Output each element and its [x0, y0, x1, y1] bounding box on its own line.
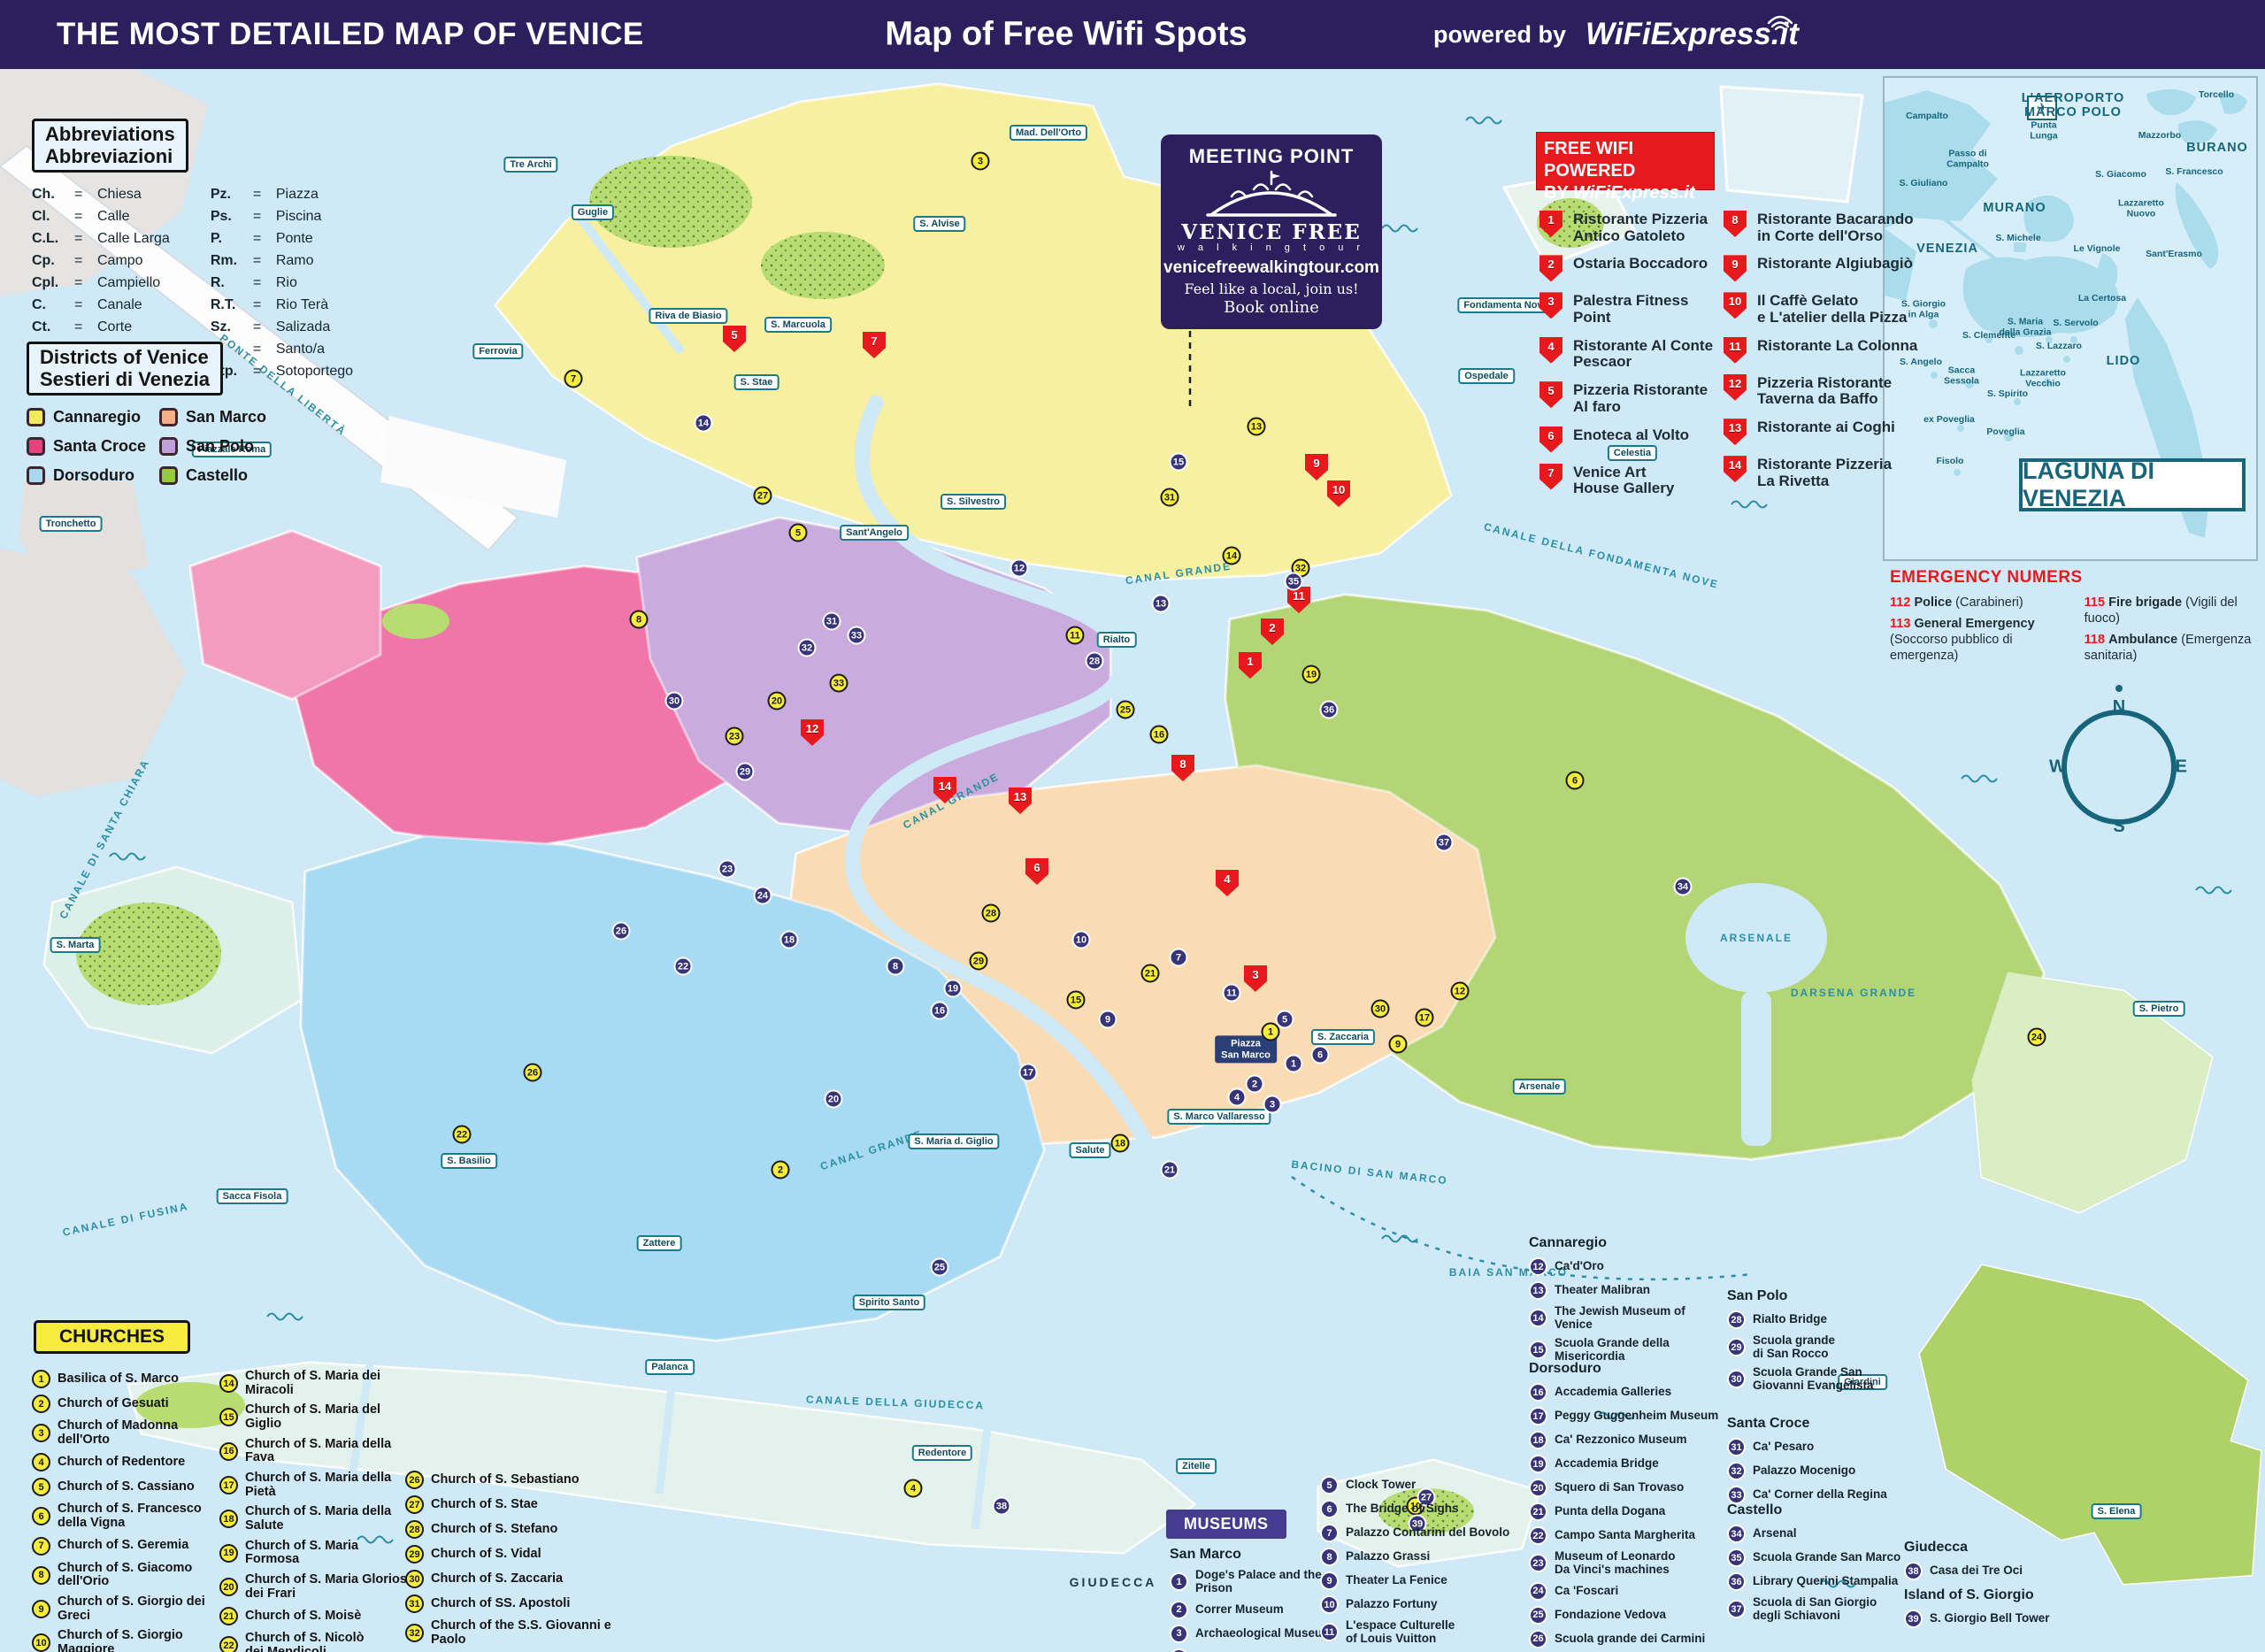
museum-number-badge: 10 [1320, 1595, 1339, 1614]
abbreviation-equals: = [74, 253, 97, 269]
abbreviation-equals: = [74, 275, 97, 291]
museum-number-badge: 18 [1529, 1431, 1547, 1449]
emergency-col-1: 112 Police (Carabineri)113 General Emerg… [1890, 595, 2062, 665]
district-label: Santa Croce [53, 437, 146, 456]
church-marker: 16 [1150, 726, 1169, 744]
museum-number-badge: 29 [1727, 1338, 1746, 1356]
church-list-item: 5Church of S. Cassiano [32, 1478, 222, 1496]
church-number-badge: 30 [405, 1570, 424, 1588]
church-list-item: 19Church of S. Maria Formosa [219, 1540, 416, 1567]
district-color-swatch [27, 437, 45, 456]
church-number-badge: 18 [219, 1510, 238, 1528]
compass-n: N [2113, 697, 2125, 718]
wifi-spot-item: 13Ristorante ai Coghi [1724, 419, 1918, 445]
museum-number-badge: 37 [1727, 1600, 1746, 1618]
museum-list-item: 31Ca' Pesaro [1727, 1438, 1913, 1456]
church-number-badge: 7 [32, 1537, 50, 1556]
abbreviation-row: C.L.=Calle Larga [32, 231, 177, 247]
museum-list-item: 22Campo Santa Margherita [1529, 1526, 1725, 1545]
museum-number-badge: 38 [1904, 1562, 1923, 1580]
museum-marker: 26 [612, 922, 631, 941]
church-number-badge: 3 [32, 1424, 50, 1442]
church-marker: 2 [772, 1161, 790, 1179]
museum-group-header: Santa Croce [1727, 1416, 1913, 1432]
walking-tour-brand: VENICE FREE [1161, 220, 1382, 244]
emergency-numbers-panel: EMERGENCY NUMERS 112 Police (Carabineri)… [1890, 568, 2261, 665]
abbreviation-key: Cl. [32, 209, 74, 225]
abbreviation-key: Ch. [32, 187, 74, 203]
museum-list-item: 8Palazzo Grassi [1320, 1548, 1515, 1566]
museum-list-item: 17Peggy Guggenheim Museum [1529, 1407, 1725, 1425]
museum-list-item: 29Scuola grande di San Rocco [1727, 1334, 1913, 1361]
museum-group: Cannaregio12Ca'd'Oro13Theater Malibran14… [1529, 1235, 1724, 1363]
abbreviation-equals: = [253, 275, 276, 291]
church-name: Church of S. Maria Gloriosa dei Frari [245, 1573, 414, 1601]
museum-marker: 4 [1228, 1088, 1247, 1107]
murano-fragment-shape [1721, 87, 1862, 202]
museum-number-badge: 20 [1529, 1479, 1547, 1497]
wifi-spot-name: Enoteca al Volto [1573, 427, 1689, 444]
laguna-label: S. Giacomo [2095, 170, 2146, 181]
laguna-inset-map: ✈L'AEROPORTO MARCO POLOCampaltoPunta Lun… [1883, 76, 2258, 561]
laguna-label: S. Spirito [1987, 389, 2028, 400]
museum-name: Palazzo Fortuny [1346, 1598, 1438, 1611]
vaporetto-stop-tag: Salute [1069, 1142, 1110, 1158]
vaporetto-stop-tag: Sant'Angelo [840, 525, 909, 541]
water-label: DARSENA GRANDE [1791, 987, 1916, 999]
district-legend-item: Cannaregio [27, 408, 159, 426]
museum-name: Library Querini Stampalia [1753, 1575, 1898, 1588]
church-name: Church of S. Maria della Fava [245, 1438, 416, 1465]
church-name: Church of S. Giorgio dei Greci [58, 1595, 222, 1623]
churches-column-3: 26Church of S. Sebastiano27Church of S. … [405, 1471, 631, 1652]
church-number-badge: 2 [32, 1395, 50, 1413]
museum-list-item: 15Scuola Grande della Misericordia [1529, 1337, 1724, 1364]
vaporetto-stop-tag: Spirito Santo [853, 1295, 925, 1310]
museum-number-badge: 21 [1529, 1502, 1547, 1521]
church-list-item: 7Church of S. Geremia [32, 1537, 222, 1556]
abbreviation-equals: = [74, 231, 97, 247]
wifi-spot-marker: 12 [1724, 374, 1747, 401]
church-marker: 27 [754, 487, 772, 505]
vaporetto-stop-tag: S. Silvestro [941, 494, 1006, 510]
museum-list-item: 38Casa dei Tre Oci [1904, 1562, 2090, 1580]
district-legend-item: Dorsoduro [27, 466, 159, 485]
water-label: GIUDECCA [1070, 1575, 1157, 1589]
museum-marker: 29 [736, 763, 755, 781]
compass-ring [2062, 710, 2177, 825]
church-marker: 21 [1141, 964, 1160, 983]
museum-marker: 32 [798, 639, 817, 657]
church-number-badge: 6 [32, 1507, 50, 1525]
wifi-spot-name: Ristorante Bacarando in Corte dell'Orso [1757, 211, 1914, 244]
museum-number-badge: 11 [1320, 1623, 1339, 1641]
laguna-label: VENEZIA [1916, 242, 1978, 257]
wifi-spot-item: 9Ristorante Algiubagiò [1724, 255, 1918, 281]
museum-number-badge: 16 [1529, 1383, 1547, 1402]
district-legend-item: San Polo [159, 437, 283, 456]
churches-column-2: 14Church of S. Maria dei Miracoli15Churc… [219, 1370, 416, 1652]
abbreviation-key: C.L. [32, 231, 74, 247]
meeting-point-title: MEETING POINT [1161, 145, 1382, 168]
water-label: ARSENALE [1720, 932, 1793, 944]
church-list-item: 8Church of S. Giacomo dell'Orio [32, 1562, 222, 1589]
church-name: Church of S. Cassiano [58, 1480, 195, 1494]
church-list-item: 9Church of S. Giorgio dei Greci [32, 1595, 222, 1623]
museum-group: Dorsoduro16Accademia Galleries17Peggy Gu… [1529, 1361, 1725, 1652]
museum-marker: 15 [1170, 453, 1188, 472]
abbreviation-value: Rio [276, 275, 297, 291]
museum-list-item: 34Arsenal [1727, 1525, 1922, 1543]
museum-name: Fondazione Vedova [1555, 1609, 1666, 1622]
church-name: Church of S. Nicolò dei Mendicoli [245, 1632, 365, 1652]
museum-name: Clock Tower [1346, 1479, 1416, 1492]
district-label: Cannaregio [53, 408, 141, 426]
museum-name: Scuola Grande della Misericordia [1555, 1337, 1670, 1364]
museum-marker: 18 [780, 931, 799, 949]
church-marker: 12 [1451, 982, 1470, 1001]
abbreviation-value: Corte [97, 319, 132, 335]
wifi-spot-item: 6Enoteca al Volto [1539, 426, 1716, 453]
wifi-spot-item: 1Ristorante Pizzeria Antico Gatoleto [1539, 211, 1716, 244]
museum-marker: 13 [1152, 595, 1171, 613]
compass-s: S [2113, 817, 2124, 837]
vaporetto-stop-tag: S. Marcuola [764, 317, 832, 333]
abbreviation-equals: = [74, 297, 97, 313]
church-marker: 8 [630, 611, 649, 629]
museum-marker: 34 [1674, 878, 1693, 896]
church-marker: 4 [904, 1479, 923, 1498]
vaporetto-stop-tag: Mad. Dell'Orto [1010, 125, 1087, 141]
laguna-label: LIDO [2107, 355, 2141, 369]
museum-name: Ca' Corner della Regina [1753, 1488, 1887, 1502]
wifi-spot-marker: 7 [1539, 464, 1562, 490]
compass-e: E [2176, 757, 2187, 778]
abbreviation-row: Ps.=Piscina [211, 209, 353, 225]
museum-list-item: 2Correr Museum [1170, 1601, 1333, 1619]
wifi-spot-name: Ristorante ai Coghi [1757, 419, 1895, 436]
emergency-col-2: 115 Fire brigade (Vigili del fuoco)118 A… [2085, 595, 2261, 665]
header-bar: THE MOST DETAILED MAP OF VENICE Map of F… [0, 0, 2265, 69]
museum-name: Scuola Grande San Marco [1753, 1551, 1900, 1564]
vaporetto-stop-tag: S. Stae [734, 374, 779, 390]
museum-list-item: 4Library Marciana [1170, 1648, 1333, 1652]
abbreviation-row: Cpl.=Campiello [32, 275, 177, 291]
district-legend-item: Santa Croce [27, 437, 159, 456]
wifi-spots-column-2: 8Ristorante Bacarando in Corte dell'Orso… [1724, 211, 1918, 490]
church-list-item: 29Church of S. Vidal [405, 1545, 631, 1564]
abbreviation-row: Rm.=Ramo [211, 253, 353, 269]
church-marker: 24 [2028, 1028, 2046, 1047]
museum-name: Accademia Bridge [1555, 1457, 1659, 1471]
museum-list-item: 16Accademia Galleries [1529, 1383, 1725, 1402]
wifi-spot-name: Ristorante Algiubagiò [1757, 256, 1913, 273]
museum-number-badge: 22 [1529, 1526, 1547, 1545]
church-marker: 26 [524, 1064, 542, 1082]
church-number-badge: 8 [32, 1566, 50, 1585]
churches-title: CHURCHES [34, 1320, 190, 1354]
museum-marker: 31 [823, 612, 841, 631]
church-number-badge: 1 [32, 1370, 50, 1388]
laguna-label: BURANO [2186, 142, 2248, 156]
church-number-badge: 14 [219, 1374, 238, 1393]
laguna-title: LAGUNA DI VENEZIA [2019, 458, 2246, 511]
vaporetto-stop-tag: Riva de Biasio [649, 308, 727, 324]
church-list-item: 14Church of S. Maria dei Miracoli [219, 1370, 416, 1397]
abbreviation-key: Pz. [211, 187, 253, 203]
museum-marker: 21 [1161, 1161, 1179, 1179]
church-number-badge: 17 [219, 1476, 238, 1494]
museum-list-item: 21Punta della Dogana [1529, 1502, 1725, 1521]
church-list-item: 31Church of SS. Apostoli [405, 1594, 631, 1613]
church-number-badge: 10 [32, 1633, 50, 1652]
museum-marker: 5 [1276, 1010, 1294, 1029]
museum-list-item: 10Palazzo Fortuny [1320, 1595, 1515, 1614]
museum-marker: 10 [1072, 931, 1091, 949]
museum-name: Theater Malibran [1555, 1284, 1650, 1297]
museum-marker: 37 [1435, 834, 1454, 852]
church-list-item: 32Church of the S.S. Giovanni e Paolo [405, 1619, 631, 1647]
museum-marker: 12 [1010, 559, 1029, 578]
vaporetto-stop-tag: Sacca Fisola [217, 1188, 288, 1204]
wave-squiggle-icon [265, 1310, 304, 1325]
museum-name: Scuola grande dei Carmini [1555, 1633, 1705, 1646]
museum-number-badge: 12 [1529, 1257, 1547, 1276]
church-list-item: 17Church of S. Maria della Pietà [219, 1471, 416, 1499]
church-list-item: 1Basilica of S. Marco [32, 1370, 222, 1388]
church-list-item: 18Church of S. Maria della Salute [219, 1505, 416, 1533]
wifi-spot-marker: 5 [1539, 381, 1562, 408]
laguna-label: Poveglia [1986, 427, 2024, 438]
abbreviation-value: Piscina [276, 209, 322, 225]
church-name: Church of S. Maria della Salute [245, 1505, 416, 1533]
vaporetto-stop-tag: S. Marco Vallaresso [1167, 1109, 1271, 1125]
abbreviation-row: Sz.=Salizada [211, 319, 353, 335]
museum-list-item: 39S. Giorgio Bell Tower [1904, 1610, 2090, 1628]
wifi-spot-item: 5Pizzeria Ristorante Al faro [1539, 381, 1716, 415]
museum-list-item: 33Ca' Corner della Regina [1727, 1486, 1913, 1504]
church-name: Church of S. Stae [431, 1498, 538, 1512]
museum-group-header: Dorsoduro [1529, 1361, 1725, 1377]
museum-group: San Polo28Rialto Bridge29Scuola grande d… [1727, 1288, 1913, 1392]
museum-marker: 6 [1311, 1046, 1330, 1064]
museum-name: Scuola grande di San Rocco [1753, 1334, 1835, 1361]
museum-list-item: 14The Jewish Museum of Venice [1529, 1305, 1724, 1332]
powered-by-label: powered by [1433, 21, 1566, 49]
museum-name: Archaeological Museum [1195, 1627, 1332, 1640]
vaporetto-stop-tag: Arsenale [1513, 1079, 1566, 1095]
powered-by-group: powered by WiFiExpress.it [1433, 17, 1799, 52]
church-marker: 22 [453, 1126, 472, 1144]
museum-name: The Bridge of Sighs [1346, 1502, 1459, 1516]
wifi-spot-name: Venice Art House Gallery [1573, 465, 1674, 497]
district-legend-item: Castello [159, 466, 283, 485]
wave-squiggle-icon [1960, 772, 1999, 788]
church-name: Church of Gesuati [58, 1397, 169, 1411]
wifi-spot-item: 2Ostaria Boccadoro [1539, 255, 1716, 281]
emergency-item: 113 General Emergency (Soccorso pubblico… [1890, 616, 2062, 664]
abbreviation-key: R.T. [211, 297, 253, 313]
district-label: Dorsoduro [53, 466, 134, 485]
museum-marker: 14 [695, 414, 713, 433]
museum-marker: 11 [1223, 984, 1241, 1003]
church-name: Church of S. Giacomo dell'Orio [58, 1562, 222, 1589]
districts-legend: Districts of Venice Sestieri di Venezia … [27, 342, 283, 485]
museum-marker: 23 [718, 860, 737, 879]
vaporetto-stop-tag: S. Pietro [2133, 1001, 2185, 1017]
museum-list-item: 3Archaeological Museum [1170, 1625, 1333, 1643]
museum-list-item: 9Theater La Fenice [1320, 1571, 1515, 1590]
wave-squiggle-icon [2194, 883, 2233, 899]
museum-marker: 17 [1019, 1064, 1038, 1082]
wifi-spot-marker: 14 [1724, 456, 1747, 482]
abbreviations-panel: Abbreviations Abbreviazioni Ch.=ChiesaCl… [32, 119, 353, 380]
museum-marker: 1 [1285, 1055, 1303, 1073]
museum-name: Scuola di San Giorgio degli Schiavoni [1753, 1596, 1877, 1623]
museum-name: Museum of Leonardo Da Vinci's machines [1555, 1550, 1676, 1577]
museums-title: MUSEUMS [1166, 1510, 1286, 1539]
museum-name: Arsenal [1753, 1527, 1797, 1541]
museum-list-item: 28Rialto Bridge [1727, 1310, 1913, 1329]
museum-number-badge: 33 [1727, 1486, 1746, 1504]
abbreviation-value: Chiesa [97, 187, 142, 203]
museum-name: Ca' Pesaro [1753, 1441, 1814, 1454]
abbreviation-value: Canale [97, 297, 142, 313]
museum-marker: 38 [993, 1497, 1011, 1516]
laguna-label: Passo di Campalto [1946, 149, 1989, 169]
abbreviation-key: Ps. [211, 209, 253, 225]
church-marker: 11 [1066, 626, 1085, 645]
museum-name: Ca' Rezzonico Museum [1555, 1433, 1686, 1447]
church-list-item: 20Church of S. Maria Gloriosa dei Frari [219, 1573, 416, 1601]
church-name: Church of S. Maria del Giglio [245, 1403, 416, 1431]
museum-marker: 35 [1285, 572, 1303, 591]
museum-group: Castello34Arsenal35Scuola Grande San Mar… [1727, 1502, 1922, 1623]
districts-items: CannaregioSan MarcoSanta CroceSan PoloDo… [27, 408, 283, 485]
church-number-badge: 20 [219, 1578, 238, 1596]
abbreviation-equals: = [74, 209, 97, 225]
abbreviation-value: Piazza [276, 187, 319, 203]
museum-number-badge: 35 [1727, 1548, 1746, 1567]
abbreviation-key: Cpl. [32, 275, 74, 291]
wifi-spot-name: Ristorante Pizzeria Antico Gatoleto [1573, 211, 1708, 244]
church-number-badge: 28 [405, 1520, 424, 1539]
museum-list-item: 13Theater Malibran [1529, 1281, 1724, 1300]
emergency-columns: 112 Police (Carabineri)113 General Emerg… [1890, 595, 2261, 665]
district-color-swatch [27, 466, 45, 485]
museum-marker: 36 [1320, 701, 1339, 719]
museum-list-item: 26Scuola grande dei Carmini [1529, 1630, 1725, 1648]
church-list-item: 26Church of S. Sebastiano [405, 1471, 631, 1489]
abbreviation-value: Campiello [97, 275, 160, 291]
free-wifi-line1: FREE WIFI POWERED [1544, 138, 1707, 182]
museum-marker: 22 [674, 957, 693, 976]
wifi-spot-name: Ostaria Boccadoro [1573, 256, 1708, 273]
museum-number-badge: 24 [1529, 1582, 1547, 1601]
museum-number-badge: 32 [1727, 1462, 1746, 1480]
district-label: San Polo [186, 437, 254, 456]
abbreviation-value: Campo [97, 253, 143, 269]
museum-name: Ca 'Foscari [1555, 1585, 1618, 1598]
abbreviation-value: Sotoportego [276, 364, 353, 380]
museum-list-item: 11L'espace Culturelle of Louis Vuitton [1320, 1619, 1515, 1646]
wifi-spot-item: 10Il Caffè Gelato e L'atelier della Pizz… [1724, 292, 1918, 326]
walking-tour-sub: w a l k i n g t o u r [1161, 242, 1382, 253]
wifi-spot-marker: 10 [1724, 292, 1747, 319]
abbreviation-row: Cl.=Calle [32, 209, 177, 225]
church-marker: 20 [768, 692, 787, 711]
laguna-label: S. Lazzaro [2036, 342, 2082, 352]
book-online-label: Book online [1161, 298, 1382, 317]
museum-number-badge: 15 [1529, 1341, 1547, 1359]
church-list-item: 4Church of Redentore [32, 1453, 222, 1471]
museum-list-item: 30Scuola Grande San Giovanni Evangelista [1727, 1366, 1913, 1393]
vaporetto-stop-tag: S. Zaccaria [1311, 1029, 1375, 1045]
wave-squiggle-icon [1464, 113, 1503, 129]
museum-marker: 9 [1099, 1010, 1117, 1029]
museum-number-badge: 28 [1727, 1310, 1746, 1329]
museum-name: L'espace Culturelle of Louis Vuitton [1346, 1619, 1455, 1646]
church-marker: 13 [1248, 418, 1266, 436]
church-number-badge: 9 [32, 1600, 50, 1618]
church-number-badge: 26 [405, 1471, 424, 1489]
church-number-badge: 19 [219, 1544, 238, 1563]
museum-number-badge: 8 [1320, 1548, 1339, 1566]
arsenal-channel [1741, 991, 1771, 1146]
museum-group: 5Clock Tower6The Bridge of Sighs7Palazzo… [1320, 1476, 1515, 1646]
church-marker: 33 [830, 674, 848, 693]
vaporetto-stop-tag: Ferrovia [472, 343, 523, 359]
laguna-label: Sacca Sessola [1944, 365, 1979, 386]
museum-list-item: 23Museum of Leonardo Da Vinci's machines [1529, 1550, 1725, 1577]
museum-number-badge: 23 [1529, 1554, 1547, 1572]
museum-name: S. Giorgio Bell Tower [1930, 1612, 2050, 1625]
district-color-swatch [159, 437, 178, 456]
museum-number-badge: 1 [1170, 1572, 1188, 1591]
church-marker: 19 [1302, 665, 1321, 684]
abbreviation-row: R.=Rio [211, 275, 353, 291]
museum-marker: 25 [931, 1258, 949, 1277]
laguna-label: Mazzorbo [2138, 131, 2181, 142]
church-number-badge: 15 [219, 1408, 238, 1426]
abbreviation-key: Cp. [32, 253, 74, 269]
museum-list-item: 37Scuola di San Giorgio degli Schiavoni [1727, 1596, 1922, 1623]
museum-list-item: 20Squero di San Trovaso [1529, 1479, 1725, 1497]
abbreviation-equals: = [74, 187, 97, 203]
church-name: Church of Redentore [58, 1456, 185, 1470]
museum-group-header: Cannaregio [1529, 1235, 1724, 1251]
vaporetto-stop-tag: Zitelle [1176, 1458, 1217, 1474]
museum-group-header: San Marco [1170, 1547, 1333, 1563]
museum-name: Scuola Grande San Giovanni Evangelista [1753, 1366, 1874, 1393]
church-number-badge: 4 [32, 1453, 50, 1471]
abbreviation-equals: = [253, 253, 276, 269]
abbreviation-value: Calle Larga [97, 231, 170, 247]
church-number-badge: 21 [219, 1607, 238, 1625]
museum-marker: 24 [754, 887, 772, 905]
wifi-spot-name: Ristorante La Colonna [1757, 338, 1917, 355]
church-name: Church of S. Giorgio Maggiore [58, 1629, 222, 1652]
church-marker: 18 [1111, 1134, 1130, 1153]
museum-marker: 30 [665, 692, 684, 711]
church-number-badge: 16 [219, 1442, 238, 1461]
wifi-spot-marker: 1 [1539, 211, 1562, 237]
wifi-spot-marker: 9 [1724, 255, 1747, 281]
map-subtitle: Map of Free Wifi Spots [885, 16, 1247, 54]
church-name: Church of SS. Apostoli [431, 1597, 570, 1611]
laguna-label: Lazzaretto Vecchio [2020, 368, 2066, 388]
wifi-spot-item: 12Pizzeria Ristorante Taverna da Baffo [1724, 374, 1918, 408]
